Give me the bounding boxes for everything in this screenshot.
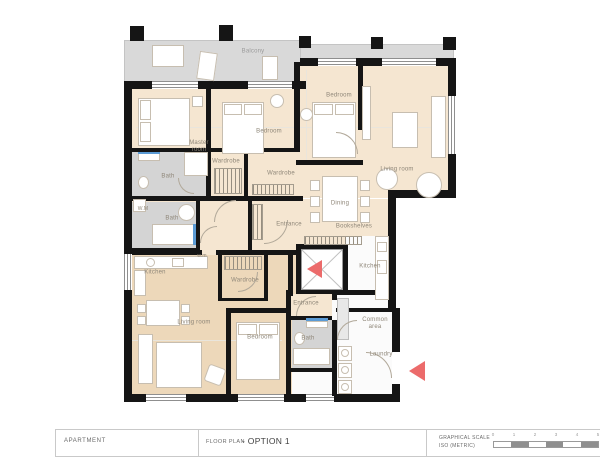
graphical-scale-bar bbox=[493, 441, 599, 448]
pillow bbox=[238, 324, 257, 335]
column bbox=[299, 36, 311, 48]
balcony-furniture bbox=[262, 56, 278, 80]
bookshelves-hatch bbox=[304, 236, 362, 245]
scale-segment bbox=[546, 442, 563, 447]
sofa bbox=[431, 96, 446, 158]
washer-door-icon bbox=[341, 349, 349, 357]
window bbox=[152, 81, 198, 89]
wall-wardrobe-divider bbox=[244, 148, 248, 200]
wall-wardrobe3-right bbox=[264, 252, 268, 300]
wall-bedroom2-bottom bbox=[296, 160, 363, 165]
scale-segment bbox=[529, 442, 546, 447]
room-label-living1: Living room bbox=[380, 166, 414, 173]
room-label-wardrobe3: Wardrobe bbox=[231, 277, 259, 284]
room-label-bedroom3: Bedroom bbox=[247, 334, 273, 341]
pillow bbox=[224, 104, 242, 115]
room-label-dining: Dining bbox=[331, 200, 349, 207]
title-block: APARTMENT FLOOR PLAN - OPTION 1 GRAPHICA… bbox=[55, 429, 600, 457]
table bbox=[146, 300, 180, 326]
wardrobe2-hatch bbox=[252, 184, 294, 195]
washer-door-icon bbox=[341, 366, 349, 374]
room-label-bath1: Bath bbox=[161, 173, 174, 180]
dining-chair bbox=[360, 180, 370, 191]
wall-lower-unit-top bbox=[132, 250, 302, 255]
scale-tick: 1 bbox=[513, 432, 516, 437]
room-label-balcony: Balcony bbox=[242, 48, 265, 55]
scale-segment bbox=[494, 442, 511, 447]
wardrobe3-hatch bbox=[224, 256, 262, 270]
wall-bath3-left bbox=[286, 290, 291, 396]
bath3-tub bbox=[293, 348, 330, 365]
wall-left bbox=[124, 81, 132, 402]
elevator-wall-right bbox=[343, 244, 348, 294]
window bbox=[124, 254, 132, 290]
pillow bbox=[259, 324, 278, 335]
drawing-type-label: FLOOR PLAN bbox=[206, 439, 245, 445]
room-label-entrance1: Entrance bbox=[276, 221, 302, 228]
scale-segment bbox=[581, 442, 598, 447]
dining-chair bbox=[310, 212, 320, 223]
scale-segment bbox=[563, 442, 580, 447]
pillow bbox=[314, 104, 333, 115]
wardrobe1-hatch bbox=[214, 168, 242, 194]
window bbox=[382, 58, 436, 66]
room-label-wm1: W.M bbox=[138, 206, 149, 212]
sink bbox=[146, 258, 155, 267]
hob bbox=[172, 258, 184, 267]
pillow bbox=[140, 100, 151, 120]
wall-bedroom2-left bbox=[294, 62, 300, 152]
wall-corridor-top bbox=[132, 196, 303, 201]
sink bbox=[377, 242, 387, 252]
elevator-entry-arrow-icon bbox=[307, 260, 322, 278]
room-label-bath2: Bath bbox=[165, 215, 178, 222]
toilet bbox=[138, 176, 149, 189]
room-label-entrance2: Entrance bbox=[293, 300, 319, 307]
room-label-laundry: Laundry bbox=[369, 351, 392, 358]
room-label-wm2: w.m bbox=[197, 253, 207, 259]
dining-chair bbox=[310, 180, 320, 191]
wall-wardrobe3-bottom bbox=[218, 298, 268, 301]
window bbox=[238, 394, 284, 402]
bath3-sink bbox=[306, 321, 328, 328]
column bbox=[130, 26, 144, 41]
dining-chair bbox=[137, 316, 146, 325]
dining-table bbox=[322, 176, 358, 222]
title-block-divider bbox=[426, 430, 427, 456]
room-label-kitchen1: Kitchen bbox=[359, 263, 380, 270]
coffee-table bbox=[392, 112, 418, 148]
window bbox=[146, 394, 186, 402]
pillow bbox=[335, 104, 354, 115]
dining-chair bbox=[360, 212, 370, 223]
nightstand bbox=[192, 96, 203, 107]
column bbox=[371, 37, 383, 49]
scale-tick: 0 bbox=[492, 432, 495, 437]
dining-chair bbox=[360, 196, 370, 207]
floor-plan-sheet: Balcony Master room Bedroom Bedroom Livi… bbox=[0, 0, 600, 460]
balcony-furniture bbox=[196, 51, 218, 81]
window bbox=[306, 394, 334, 402]
entrance-closet-hatch bbox=[252, 204, 263, 240]
bath2-shower bbox=[178, 204, 195, 221]
room-label-wardrobe1: Wardrobe bbox=[212, 158, 240, 165]
balcony-furniture bbox=[152, 45, 184, 67]
scale-tick: 4 bbox=[576, 432, 579, 437]
scale-tick-labels: 0 1 2 3 4 5 bbox=[493, 432, 599, 439]
room-label-bath3: Bath bbox=[301, 335, 314, 342]
tv-cabinet bbox=[362, 86, 371, 140]
armchair bbox=[416, 172, 442, 198]
project-title: APARTMENT bbox=[64, 438, 106, 444]
room-label-bookshelves: Bookshelves bbox=[336, 223, 372, 230]
room-label-bedroom2: Bedroom bbox=[326, 92, 352, 99]
chair bbox=[300, 108, 313, 121]
scale-tick: 3 bbox=[555, 432, 558, 437]
wall-wardrobe3-left bbox=[218, 252, 222, 300]
chair bbox=[270, 94, 284, 108]
dining-chair bbox=[310, 196, 320, 207]
wall-living2-bedroom3 bbox=[226, 308, 231, 396]
main-entry-arrow-icon bbox=[409, 361, 425, 381]
sofa bbox=[138, 334, 153, 384]
room-label-bedroom1: Bedroom bbox=[256, 128, 282, 135]
window bbox=[318, 58, 356, 66]
bath2-tub bbox=[152, 224, 196, 245]
room-label-common: Common area bbox=[358, 317, 392, 331]
daybed bbox=[156, 342, 202, 388]
wall-bath3-bottom bbox=[286, 368, 336, 372]
drawing-name: - OPTION 1 bbox=[242, 436, 290, 446]
wall-bedroom3-top bbox=[226, 308, 291, 313]
bath2-tub-accent bbox=[193, 224, 196, 245]
dining-chair bbox=[137, 304, 146, 313]
room-label-master: Master room bbox=[182, 140, 216, 154]
scale-units-label: ISO (METRIC) bbox=[439, 443, 475, 449]
exterior-door-gap bbox=[392, 352, 400, 384]
bath1-sink-accent bbox=[138, 152, 160, 154]
pillow bbox=[140, 122, 151, 142]
pillow bbox=[244, 104, 262, 115]
scale-tick: 2 bbox=[534, 432, 537, 437]
column bbox=[443, 37, 456, 50]
washer-door-icon bbox=[341, 383, 349, 391]
graphical-scale-label: GRAPHICAL SCALE bbox=[439, 435, 490, 441]
room-label-kitchen2: Kitchen bbox=[144, 269, 165, 276]
window bbox=[248, 81, 292, 89]
window bbox=[448, 96, 456, 154]
dining-chair bbox=[181, 304, 190, 313]
title-block-divider bbox=[198, 430, 199, 456]
bath1-shower bbox=[184, 152, 208, 176]
room-label-living2: Living room bbox=[177, 319, 211, 326]
scale-segment bbox=[511, 442, 528, 447]
room-label-wardrobe2: Wardrobe bbox=[267, 170, 295, 177]
column bbox=[219, 25, 233, 41]
scale-tick: 5 bbox=[597, 432, 600, 437]
